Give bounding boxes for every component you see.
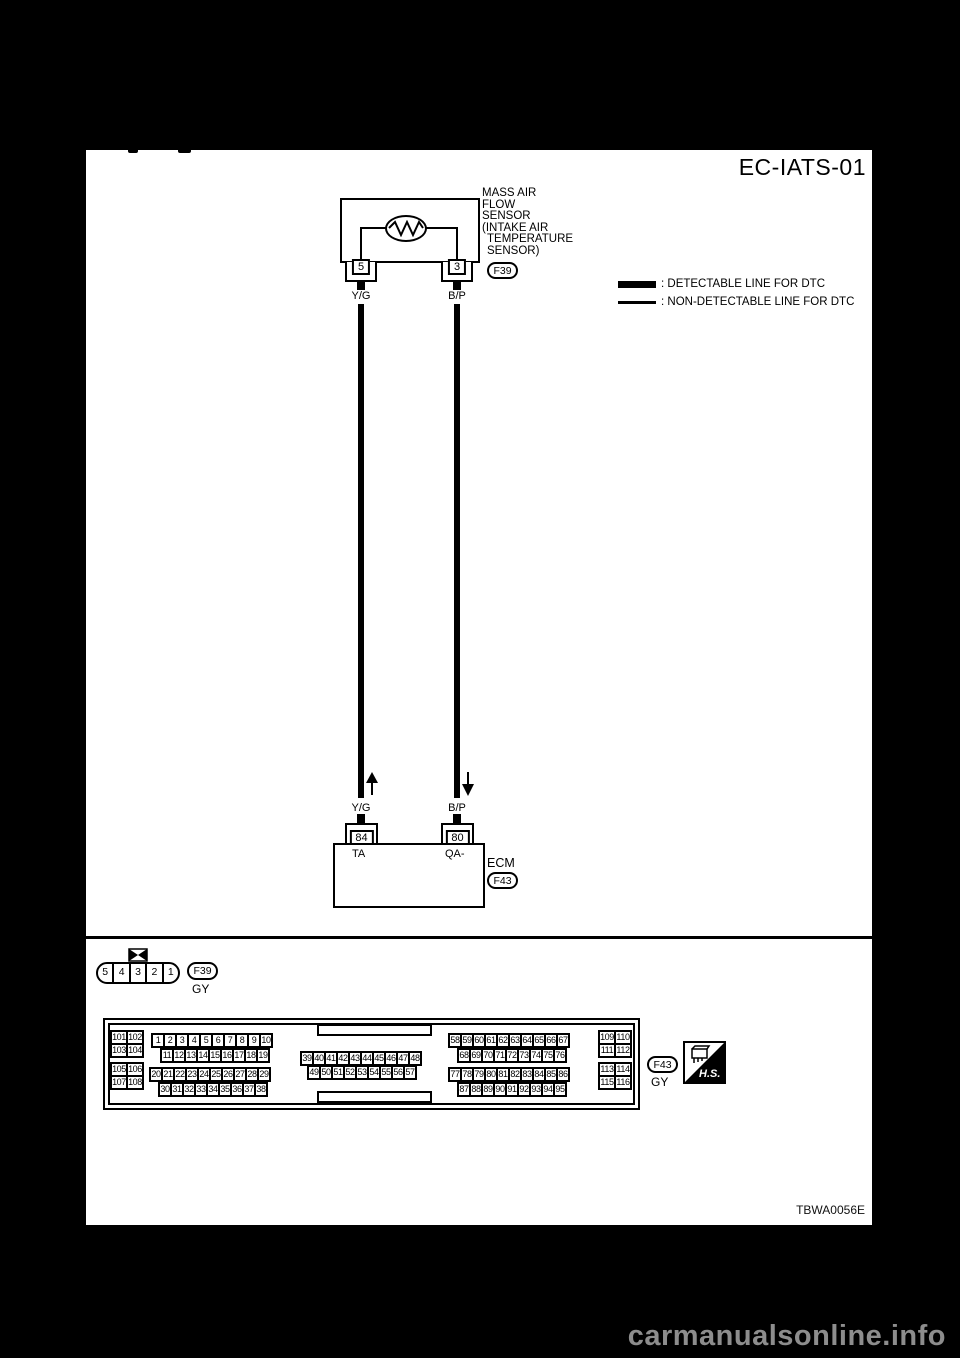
pin-cell: 76 xyxy=(553,1048,567,1063)
wire-color-label: Y/G xyxy=(341,802,381,814)
sensor-internal-wire xyxy=(425,227,458,229)
wire-color-label: B/P xyxy=(437,802,477,814)
terminal-name: QA- xyxy=(445,848,465,860)
cutoff-text-fragment xyxy=(178,150,191,153)
pin-row-1-10: 12345678910 xyxy=(153,1033,273,1048)
harness-side-mark: H.S. xyxy=(683,1041,726,1084)
wire-color-label: B/P xyxy=(437,290,477,302)
svg-text:H.S.: H.S. xyxy=(699,1068,720,1080)
figure-code: TBWA0056E xyxy=(796,1203,865,1217)
wire-stub xyxy=(453,280,461,290)
legend-non-detectable: : NON-DETECTABLE LINE FOR DTC xyxy=(618,296,854,308)
wire-stub xyxy=(357,280,365,290)
connector-color-code: GY xyxy=(651,1075,668,1089)
pin-cell: 2 xyxy=(147,964,163,982)
pin-row-87-95: 878889909192939495 xyxy=(459,1082,567,1097)
blank-slot xyxy=(317,1091,432,1103)
connector-id-tag-f43: F43 xyxy=(647,1056,678,1073)
pin-cell: 29 xyxy=(257,1067,271,1082)
hs-icon: H.S. xyxy=(685,1043,724,1082)
terminal-name: TA xyxy=(352,848,365,860)
sensor-pin-terminal: 3 xyxy=(441,262,473,282)
pin-cell: 67 xyxy=(556,1033,570,1048)
pin-row-68-76: 686970717273747576 xyxy=(459,1048,567,1063)
pin-number: 5 xyxy=(352,259,370,275)
pin-cell: 112 xyxy=(614,1043,632,1058)
legend-text: : NON-DETECTABLE LINE FOR DTC xyxy=(661,296,854,308)
connector-color-code: GY xyxy=(192,982,209,996)
pin-cell: 5 xyxy=(98,964,114,982)
pin-row-39-48: 39404142434445464748 xyxy=(302,1051,422,1066)
pin-cell: 57 xyxy=(403,1065,417,1080)
sensor-label: MASS AIR FLOW SENSOR (INTAKE AIR TEMPERA… xyxy=(482,188,573,258)
wire-bp-detectable xyxy=(454,304,460,798)
pin-row-49-57: 495051525354555657 xyxy=(309,1065,417,1080)
pin-grid-row: 115116 xyxy=(600,1075,632,1090)
pin-cell: 1 xyxy=(164,964,178,982)
sensor-pin-terminal: 5 xyxy=(345,262,377,282)
diagram-sheet: EC-IATS-01 MASS AIR FLOW SENSOR (INTAKE … xyxy=(86,150,872,1225)
sensor-internal-wire xyxy=(360,227,362,263)
pin-grid-row: 107108 xyxy=(112,1075,144,1090)
blank-slot xyxy=(317,1024,432,1036)
pin-cell: 10 xyxy=(259,1033,273,1048)
section-divider xyxy=(86,936,872,939)
pin-cell: 108 xyxy=(126,1075,144,1090)
legend-detectable: : DETECTABLE LINE FOR DTC xyxy=(618,278,825,290)
pin-row-20-29: 20212223242526272829 xyxy=(151,1067,271,1082)
connector-id-tag-f39: F39 xyxy=(487,262,518,279)
thick-line-swatch xyxy=(618,281,656,288)
scanned-manual-page: { "page": { "title": "EC-IATS-01", "figu… xyxy=(0,0,960,1358)
pin-grid-left: 101102103104105106107108 xyxy=(112,1030,144,1090)
sensor-internal-wire xyxy=(456,227,458,263)
pin-row-30-38: 303132333435363738 xyxy=(160,1082,268,1097)
down-arrow-icon xyxy=(462,772,474,796)
pin-cell: 95 xyxy=(553,1082,567,1097)
pin-number: 3 xyxy=(448,259,466,275)
pin-cell: 19 xyxy=(256,1048,270,1063)
diagram-title: EC-IATS-01 xyxy=(739,154,866,181)
connector-clip-icon xyxy=(128,948,148,962)
up-arrow-icon xyxy=(366,772,378,796)
pin-cell: 48 xyxy=(408,1051,422,1066)
pin-grid-right: 109110111112113114115116 xyxy=(600,1030,632,1090)
pin-cell: 86 xyxy=(556,1067,570,1082)
pin-cell: 38 xyxy=(254,1082,268,1097)
wire-yg-detectable xyxy=(358,304,364,798)
connector-id-tag-f43: F43 xyxy=(487,872,518,889)
ecm-pin-terminal: 80 xyxy=(441,823,474,843)
pin-grid-row: 111112 xyxy=(600,1043,632,1058)
wire-color-label: Y/G xyxy=(341,290,381,302)
cutoff-text-fragment xyxy=(128,150,138,153)
ecm-label: ECM xyxy=(487,856,515,870)
site-watermark: carmanualsonline.info xyxy=(628,1320,946,1353)
ecm-box: TA QA- xyxy=(333,843,485,908)
thin-line-swatch xyxy=(618,301,656,304)
pin-cell: 104 xyxy=(126,1043,144,1058)
pin-row-11-19: 111213141516171819 xyxy=(162,1048,270,1063)
connector-id-tag-f39: F39 xyxy=(187,962,218,980)
pin-grid-row: 103104 xyxy=(112,1043,144,1058)
ecm-pin-terminal: 84 xyxy=(345,823,378,843)
resistor-zigzag-icon xyxy=(388,220,424,237)
pin-cell: 4 xyxy=(114,964,130,982)
pin-cell: 3 xyxy=(131,964,147,982)
pin-row-58-67: 58596061626364656667 xyxy=(450,1033,570,1048)
pin-cell: 116 xyxy=(614,1075,632,1090)
connector-f39-face: 54321 xyxy=(96,962,180,984)
connector-f43-face: 101102103104105106107108 12345678910 111… xyxy=(103,1018,640,1110)
sensor-internal-wire xyxy=(361,227,387,229)
legend-text: : DETECTABLE LINE FOR DTC xyxy=(661,278,825,290)
pin-row-77-86: 77787980818283848586 xyxy=(450,1067,570,1082)
